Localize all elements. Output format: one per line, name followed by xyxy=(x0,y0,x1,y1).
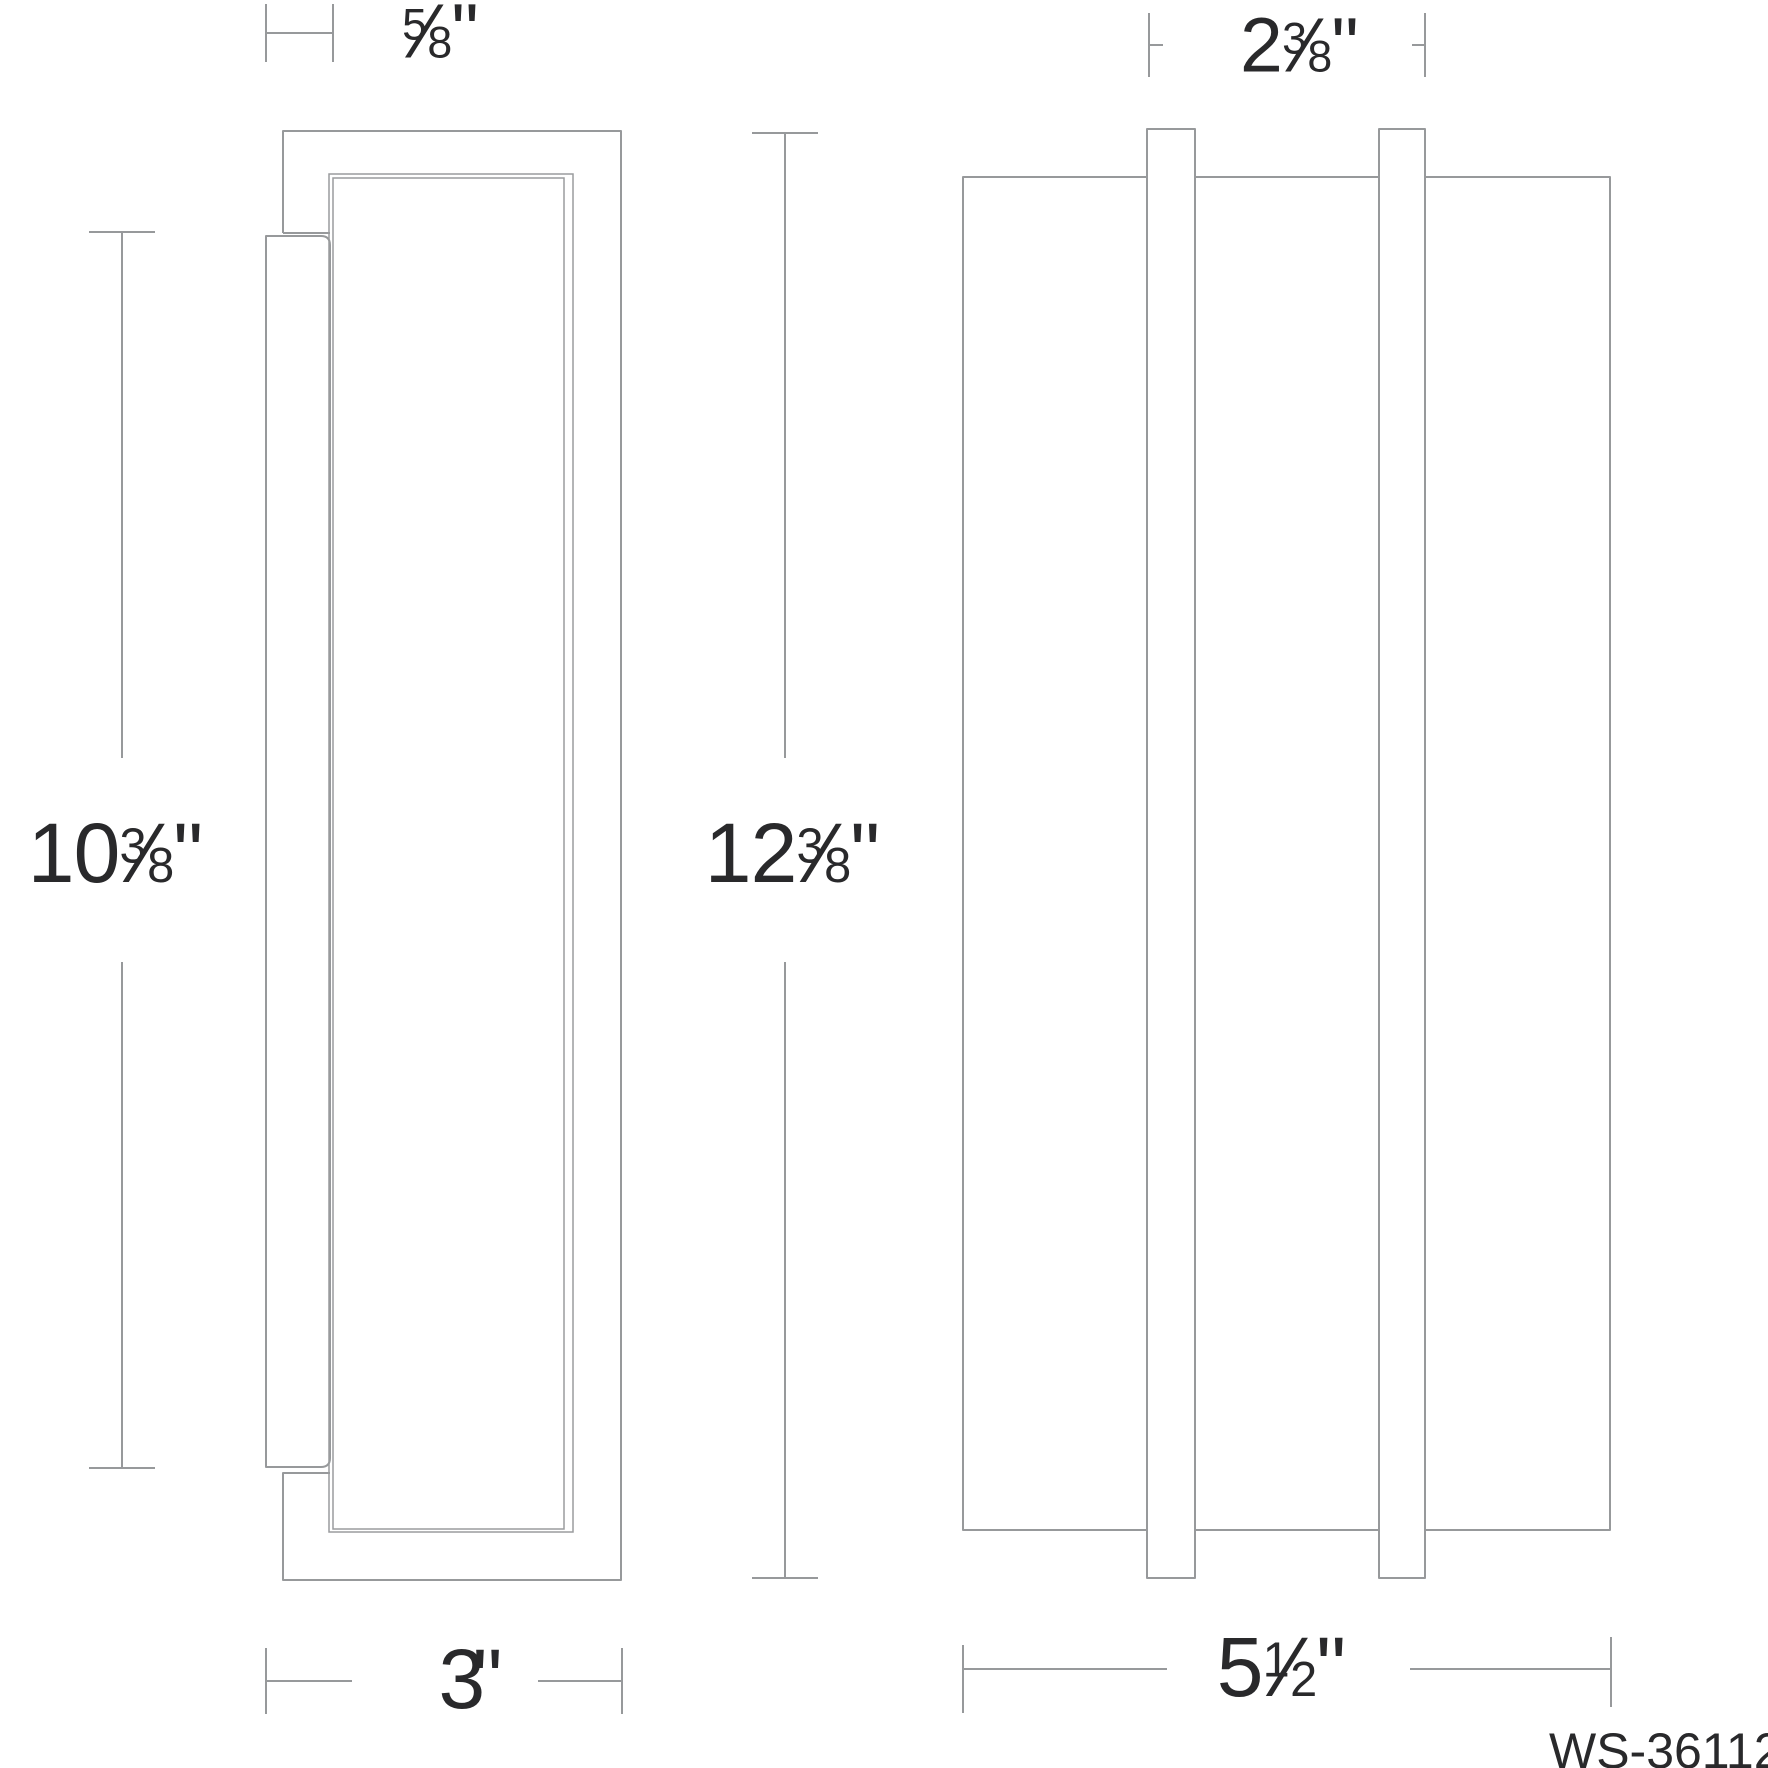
lens-panel-outer xyxy=(329,174,573,1532)
dimension-label-mount-depth: 3" xyxy=(438,1637,501,1721)
technical-drawing-svg xyxy=(0,0,1768,1768)
dimension-label-bar-spacing: 23⁄8" xyxy=(1240,8,1358,85)
front-body xyxy=(963,177,1610,1530)
dimension-label-depth-top: 5⁄8" xyxy=(402,0,478,71)
mounting-bar-right xyxy=(1379,129,1425,1578)
lens-panel-inner xyxy=(333,178,564,1529)
dimension-label-overall-width: 51⁄2" xyxy=(1217,1625,1346,1709)
dimension-label-overall-height: 123⁄8" xyxy=(705,811,879,895)
front-view xyxy=(963,129,1610,1578)
wall-plate xyxy=(266,236,330,1467)
spec-sheet: 5⁄8" 103⁄8" 123⁄8" 3" 23⁄8" 51⁄2" WS-361… xyxy=(0,0,1768,1768)
mounting-bar-left xyxy=(1147,129,1195,1578)
dimension-label-backplate-height: 103⁄8" xyxy=(28,811,202,895)
dim-depth-top xyxy=(266,4,333,62)
model-number: WS-36112 xyxy=(1549,1726,1768,1768)
side-view xyxy=(266,131,621,1580)
